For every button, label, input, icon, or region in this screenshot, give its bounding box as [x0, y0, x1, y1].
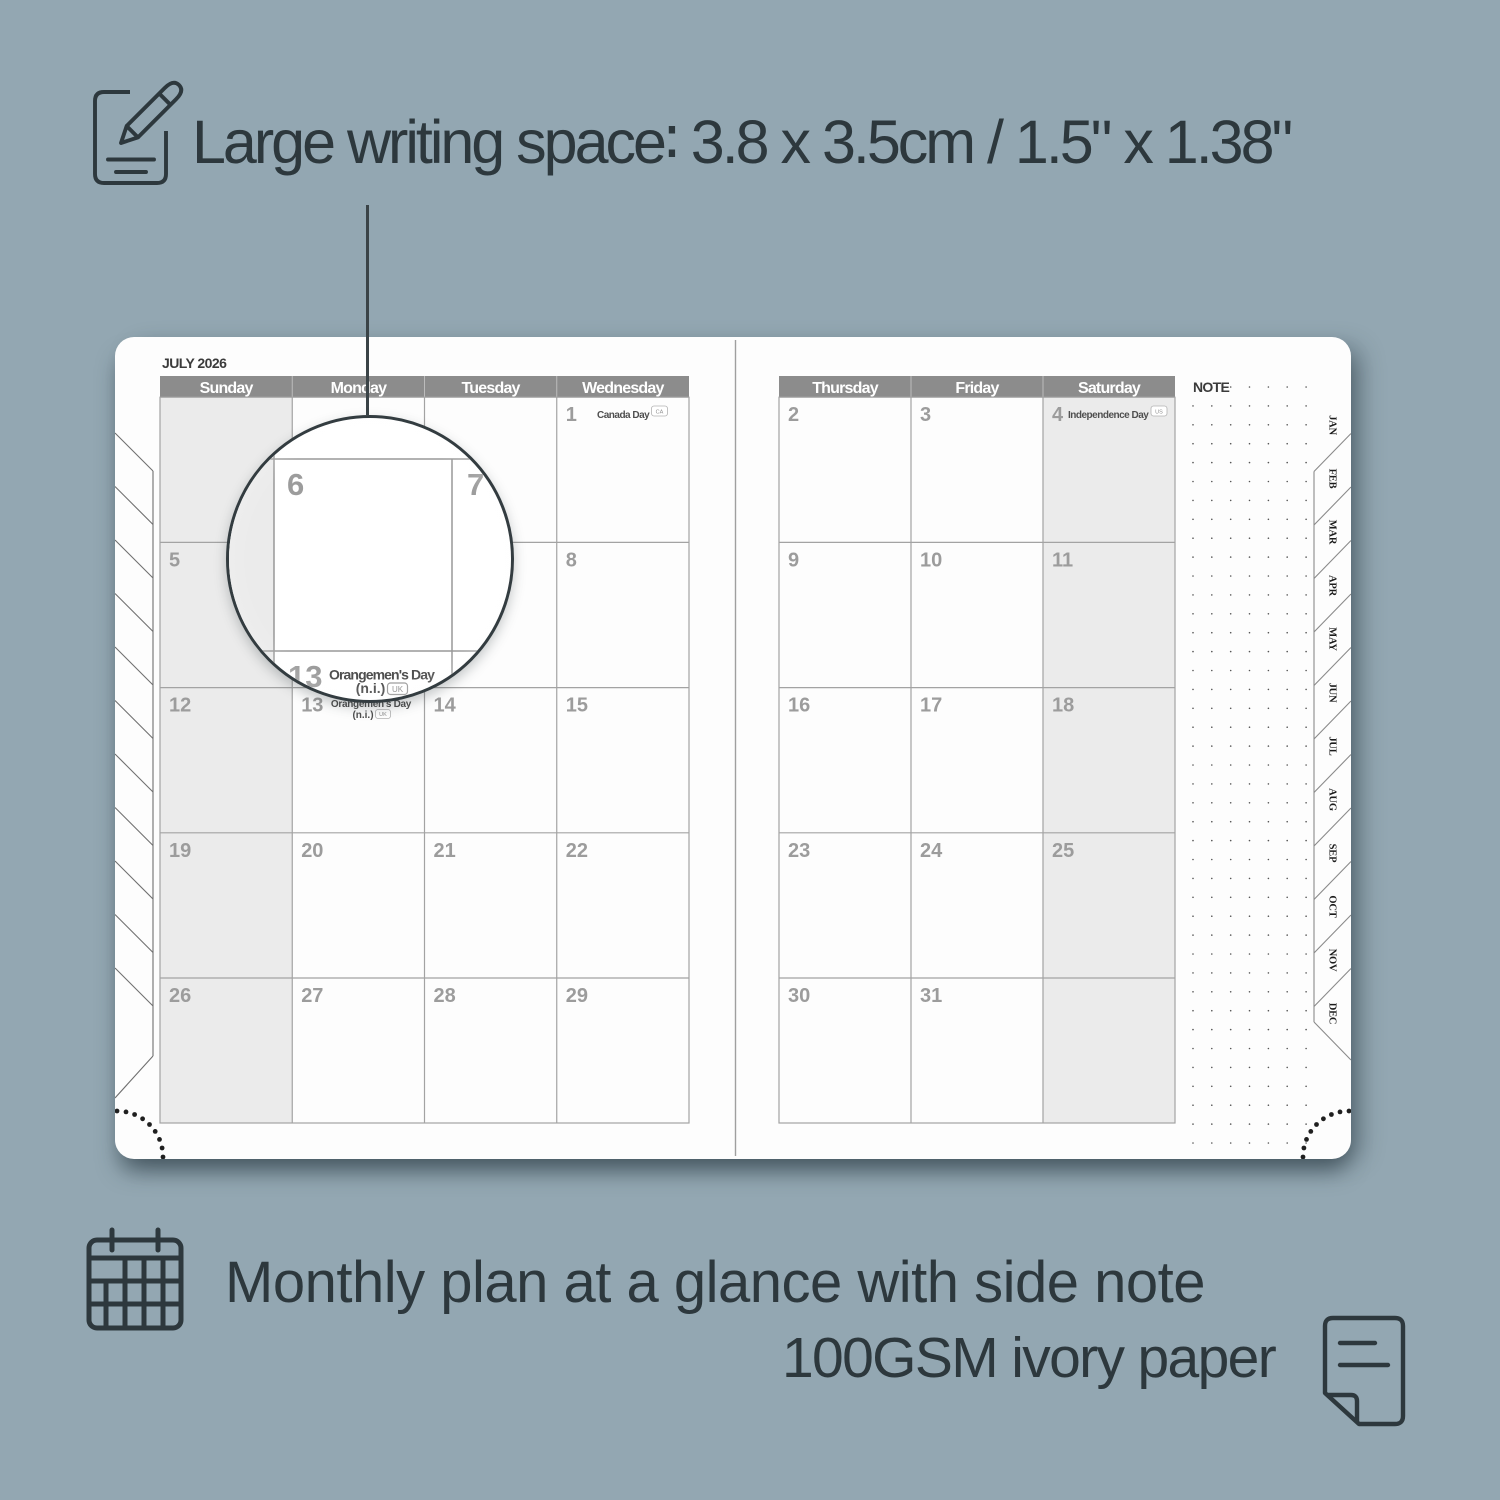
svg-text:NOV: NOV: [1327, 949, 1338, 972]
svg-text:MAR: MAR: [1327, 520, 1338, 545]
svg-text:Saturday: Saturday: [1078, 380, 1141, 397]
svg-text:Canada Day: Canada Day: [597, 410, 650, 421]
svg-text:2: 2: [788, 404, 799, 426]
svg-text:JULY 2026: JULY 2026: [162, 355, 227, 371]
svg-text:19: 19: [169, 840, 191, 862]
svg-text:3: 3: [920, 404, 931, 426]
svg-text:CA: CA: [656, 410, 664, 416]
svg-text:24: 24: [920, 840, 943, 862]
svg-text:DEC: DEC: [1327, 1003, 1338, 1025]
svg-text:15: 15: [566, 695, 588, 717]
svg-text:UK: UK: [379, 712, 387, 718]
svg-text:5: 5: [169, 549, 180, 571]
svg-text:NOTE: NOTE: [1193, 379, 1229, 395]
svg-text:AUG: AUG: [1327, 788, 1338, 811]
svg-text:12: 12: [169, 695, 191, 717]
svg-text:Thursday: Thursday: [812, 380, 879, 397]
svg-text:8: 8: [566, 549, 577, 571]
svg-text:22: 22: [566, 840, 588, 862]
svg-text:Independence Day: Independence Day: [1068, 410, 1149, 421]
svg-text:(n.i.): (n.i.): [352, 710, 373, 721]
svg-text:APR: APR: [1327, 575, 1338, 597]
svg-text:JUL: JUL: [1327, 736, 1338, 755]
svg-text:21: 21: [434, 840, 456, 862]
svg-text:FEB: FEB: [1327, 469, 1338, 489]
svg-text:31: 31: [920, 985, 942, 1007]
svg-text:26: 26: [169, 985, 191, 1007]
svg-text:10: 10: [920, 549, 942, 571]
svg-text:18: 18: [1052, 695, 1074, 717]
svg-text:25: 25: [1052, 840, 1074, 862]
svg-text:1: 1: [566, 404, 577, 426]
svg-text:SEP: SEP: [1327, 844, 1338, 863]
svg-text:MAY: MAY: [1327, 627, 1338, 651]
svg-text:16: 16: [788, 695, 810, 717]
svg-text:Wednesday: Wednesday: [582, 380, 664, 397]
svg-text:23: 23: [788, 840, 810, 862]
svg-text:28: 28: [434, 985, 456, 1007]
svg-text:30: 30: [788, 985, 810, 1007]
svg-text:20: 20: [301, 840, 323, 862]
svg-text:4: 4: [1052, 404, 1064, 426]
svg-text:JAN: JAN: [1327, 415, 1338, 435]
svg-text:29: 29: [566, 985, 588, 1007]
svg-text:17: 17: [920, 695, 942, 717]
svg-text:27: 27: [301, 985, 323, 1007]
svg-text:Sunday: Sunday: [200, 380, 254, 397]
svg-text:Tuesday: Tuesday: [462, 380, 521, 397]
svg-text:JUN: JUN: [1327, 683, 1338, 703]
svg-text:OCT: OCT: [1327, 895, 1338, 917]
svg-text:11: 11: [1052, 549, 1073, 571]
svg-text:Monday: Monday: [331, 380, 388, 397]
svg-text:US: US: [1155, 410, 1163, 416]
svg-text:Friday: Friday: [955, 380, 999, 397]
svg-text:9: 9: [788, 549, 799, 571]
